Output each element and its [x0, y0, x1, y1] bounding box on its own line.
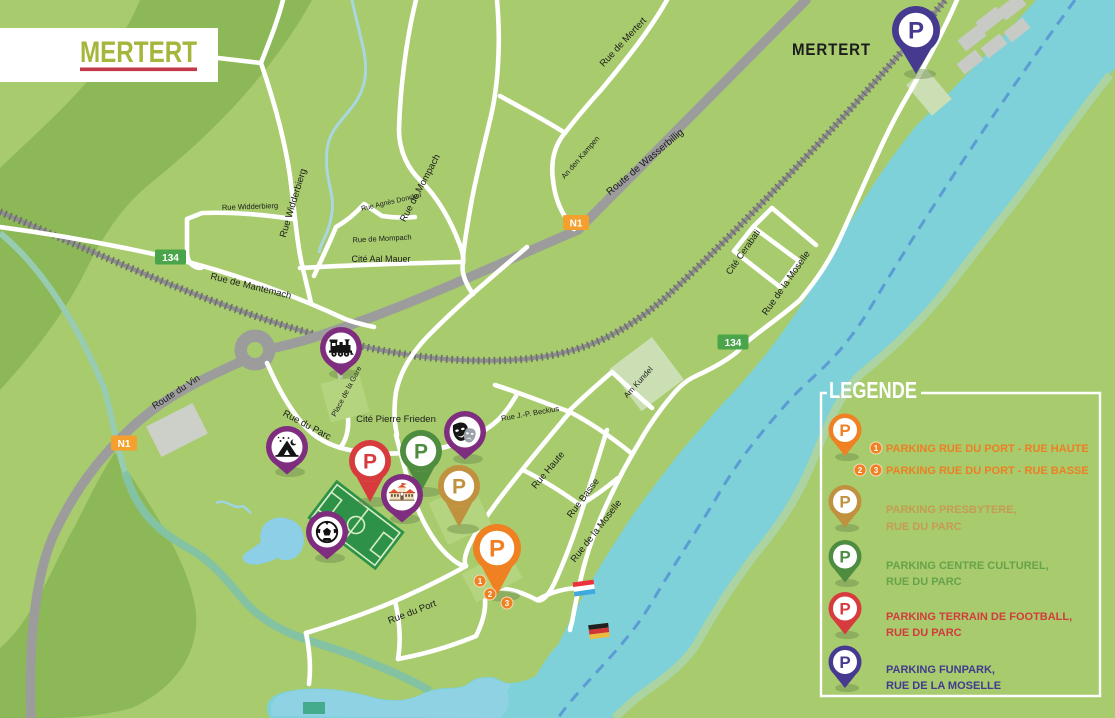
- svg-text:RUE DU PARC: RUE DU PARC: [886, 521, 962, 533]
- svg-text:P: P: [489, 536, 505, 563]
- svg-text:RUE DU PARC: RUE DU PARC: [886, 627, 962, 639]
- svg-text:1: 1: [874, 444, 879, 453]
- svg-text:RUE DU PARC: RUE DU PARC: [886, 576, 962, 588]
- svg-text:P: P: [839, 653, 850, 672]
- svg-text:P: P: [414, 441, 428, 464]
- svg-text:LEGENDE: LEGENDE: [829, 377, 917, 403]
- svg-text:PARKING TERRAIN DE FOOTBALL,: PARKING TERRAIN DE FOOTBALL,: [886, 611, 1072, 623]
- svg-text:P: P: [839, 548, 850, 567]
- svg-text:2: 2: [858, 466, 863, 475]
- svg-text:3: 3: [505, 599, 510, 608]
- svg-text:PARKING RUE DU PORT - RUE HAUT: PARKING RUE DU PORT - RUE HAUTE: [886, 443, 1089, 455]
- svg-text:Cité Pierre Frieden: Cité Pierre Frieden: [356, 414, 436, 425]
- svg-text:134: 134: [725, 338, 742, 349]
- svg-text:N1: N1: [118, 439, 131, 450]
- svg-text:3: 3: [874, 466, 879, 475]
- svg-text:MERTERT: MERTERT: [792, 40, 871, 59]
- svg-text:PARKING PRESBYTERE,: PARKING PRESBYTERE,: [886, 504, 1017, 516]
- svg-text:PARKING RUE DU PORT - RUE BASS: PARKING RUE DU PORT - RUE BASSE: [886, 465, 1089, 477]
- svg-text:P: P: [363, 451, 377, 474]
- svg-text:134: 134: [162, 253, 179, 264]
- svg-text:1: 1: [478, 577, 483, 586]
- svg-text:P: P: [839, 600, 850, 619]
- svg-text:P: P: [908, 18, 924, 45]
- svg-text:PARKING CENTRE CULTUREL,: PARKING CENTRE CULTUREL,: [886, 560, 1049, 572]
- svg-text:RUE DE LA MOSELLE: RUE DE LA MOSELLE: [886, 680, 1001, 692]
- svg-text:P: P: [839, 493, 850, 512]
- svg-text:Cité Aal Mauer: Cité Aal Mauer: [351, 254, 410, 264]
- svg-text:PARKING FUNPARK,: PARKING FUNPARK,: [886, 664, 995, 676]
- svg-text:P: P: [452, 476, 466, 499]
- svg-text:2: 2: [488, 590, 493, 599]
- svg-text:N1: N1: [570, 219, 583, 230]
- svg-text:P: P: [839, 421, 850, 440]
- svg-text:MERTERT: MERTERT: [80, 36, 197, 69]
